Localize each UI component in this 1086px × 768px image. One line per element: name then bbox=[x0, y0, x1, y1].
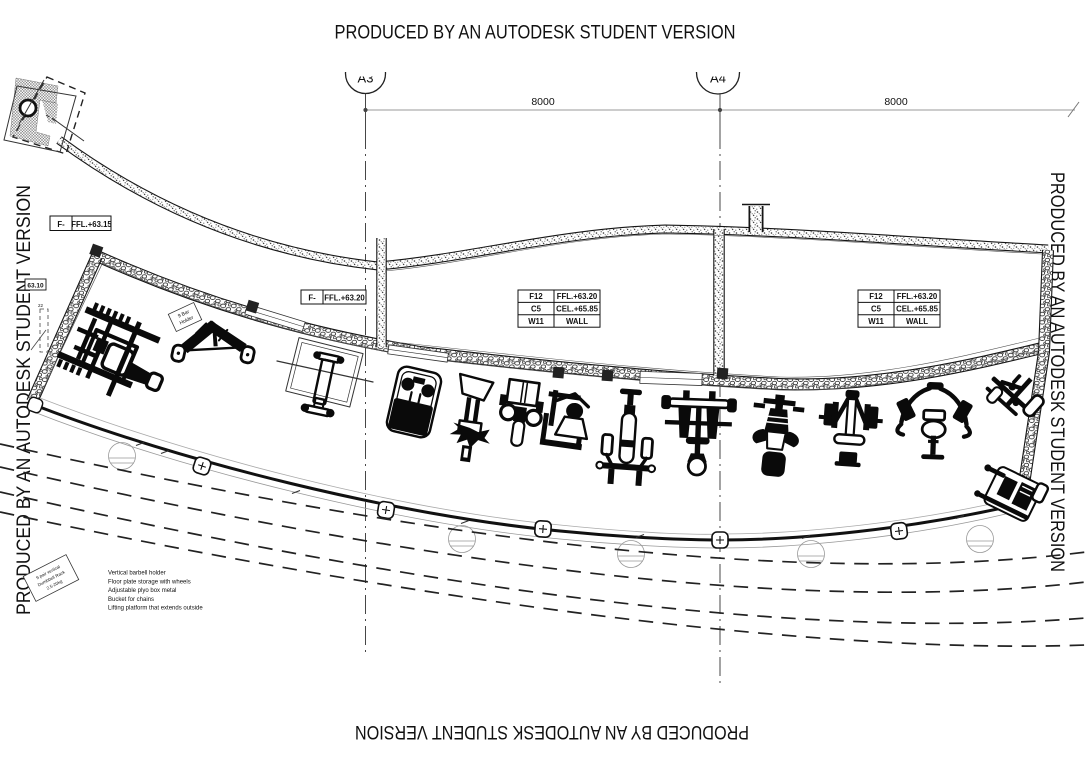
svg-text:22: 22 bbox=[38, 303, 44, 308]
svg-text:8000: 8000 bbox=[531, 96, 555, 108]
svg-text:PRODUCED BY AN AUTODESK STUDEN: PRODUCED BY AN AUTODESK STUDENT VERSION bbox=[355, 721, 749, 743]
svg-text:PRODUCED BY AN AUTODESK STUDEN: PRODUCED BY AN AUTODESK STUDENT VERSION bbox=[335, 22, 736, 44]
svg-text:WALL: WALL bbox=[906, 317, 928, 326]
svg-text:FFL.+63.20: FFL.+63.20 bbox=[324, 294, 365, 303]
svg-text:F12: F12 bbox=[869, 292, 883, 301]
svg-text:FFL.+63.20: FFL.+63.20 bbox=[557, 292, 598, 301]
svg-text:C5: C5 bbox=[871, 305, 882, 314]
svg-text:WALL: WALL bbox=[566, 317, 588, 326]
svg-text:F12: F12 bbox=[529, 292, 543, 301]
svg-text:CEL.+65.85: CEL.+65.85 bbox=[896, 305, 938, 314]
svg-text:F-: F- bbox=[57, 220, 65, 229]
svg-text:8000: 8000 bbox=[884, 96, 908, 108]
svg-text:FFL.+63.15: FFL.+63.15 bbox=[71, 220, 112, 229]
svg-text:W11: W11 bbox=[528, 317, 544, 326]
svg-text:Lifting platform that extends: Lifting platform that extends outside bbox=[108, 606, 203, 612]
svg-text:C5: C5 bbox=[531, 305, 542, 314]
svg-text:Vertical barbell holder: Vertical barbell holder bbox=[108, 571, 166, 577]
svg-text:FFL.+63.20: FFL.+63.20 bbox=[897, 292, 938, 301]
svg-text:Floor plate storage with wheel: Floor plate storage with wheels bbox=[108, 579, 191, 585]
svg-text:Adjustable plyo box metal: Adjustable plyo box metal bbox=[108, 588, 176, 594]
svg-text:CEL.+65.85: CEL.+65.85 bbox=[556, 305, 598, 314]
svg-text:63.10: 63.10 bbox=[27, 283, 44, 290]
svg-text:F-: F- bbox=[308, 294, 316, 303]
svg-text:W11: W11 bbox=[868, 317, 884, 326]
svg-text:Bucket for chains: Bucket for chains bbox=[108, 597, 154, 603]
svg-text:PRODUCED BY AN AUTODESK STUDEN: PRODUCED BY AN AUTODESK STUDENT VERSION bbox=[1046, 172, 1068, 572]
